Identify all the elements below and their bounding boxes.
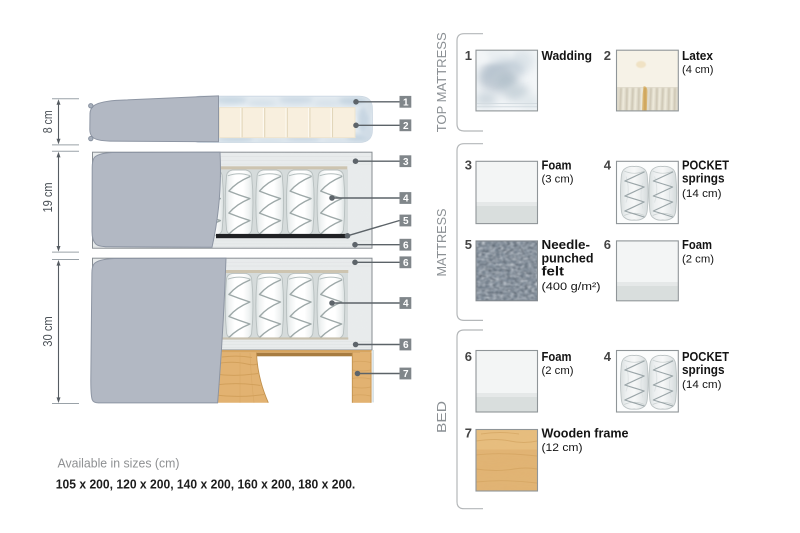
svg-text:4: 4: [604, 349, 612, 364]
svg-text:(12 cm): (12 cm): [542, 442, 583, 454]
svg-text:(14 cm): (14 cm): [682, 379, 722, 391]
svg-text:springs: springs: [682, 363, 725, 377]
svg-text:Foam: Foam: [682, 238, 712, 252]
svg-text:19 cm: 19 cm: [41, 183, 55, 213]
svg-text:(2 cm): (2 cm): [682, 253, 714, 265]
svg-text:Wadding: Wadding: [542, 49, 593, 63]
svg-text:6: 6: [403, 340, 409, 351]
svg-text:Latex: Latex: [682, 49, 713, 63]
svg-text:8 cm: 8 cm: [41, 110, 55, 133]
svg-text:Wooden frame: Wooden frame: [542, 427, 629, 441]
svg-text:2: 2: [403, 121, 409, 132]
svg-text:MATTRESS: MATTRESS: [434, 208, 449, 276]
svg-text:(3 cm): (3 cm): [542, 174, 574, 186]
svg-text:Foam: Foam: [542, 159, 572, 173]
svg-text:(14 cm): (14 cm): [682, 188, 722, 200]
svg-text:2: 2: [604, 48, 611, 63]
svg-text:7: 7: [465, 426, 472, 441]
svg-text:felt: felt: [542, 264, 566, 278]
svg-text:4: 4: [403, 299, 409, 310]
svg-text:TOP MATTRESS: TOP MATTRESS: [434, 32, 449, 132]
svg-text:7: 7: [403, 369, 409, 380]
svg-text:Available in sizes (cm): Available in sizes (cm): [58, 457, 180, 471]
svg-text:6: 6: [604, 237, 611, 252]
svg-text:6: 6: [465, 349, 472, 364]
svg-text:POCKET: POCKET: [682, 159, 729, 173]
svg-text:1: 1: [465, 48, 472, 63]
svg-text:Foam: Foam: [542, 350, 572, 364]
svg-text:30 cm: 30 cm: [41, 316, 55, 347]
svg-text:6: 6: [403, 258, 409, 269]
svg-text:Needle-: Needle-: [542, 238, 591, 252]
svg-text:springs: springs: [682, 172, 725, 186]
svg-text:BED: BED: [434, 401, 449, 433]
svg-text:POCKET: POCKET: [682, 350, 729, 364]
svg-text:(2 cm): (2 cm): [542, 365, 574, 377]
svg-text:(400 g/m²): (400 g/m²): [542, 281, 601, 293]
svg-text:(4 cm): (4 cm): [682, 64, 714, 76]
svg-text:105 x 200, 120 x 200, 140 x 20: 105 x 200, 120 x 200, 140 x 200, 160 x 2…: [56, 476, 356, 491]
svg-text:3: 3: [465, 158, 472, 173]
svg-text:4: 4: [403, 194, 409, 205]
svg-text:6: 6: [403, 240, 409, 251]
svg-text:5: 5: [403, 216, 409, 227]
svg-text:1: 1: [403, 97, 409, 108]
svg-text:5: 5: [465, 237, 472, 252]
svg-text:3: 3: [403, 157, 409, 168]
svg-text:4: 4: [604, 158, 612, 173]
svg-text:punched: punched: [542, 251, 594, 265]
